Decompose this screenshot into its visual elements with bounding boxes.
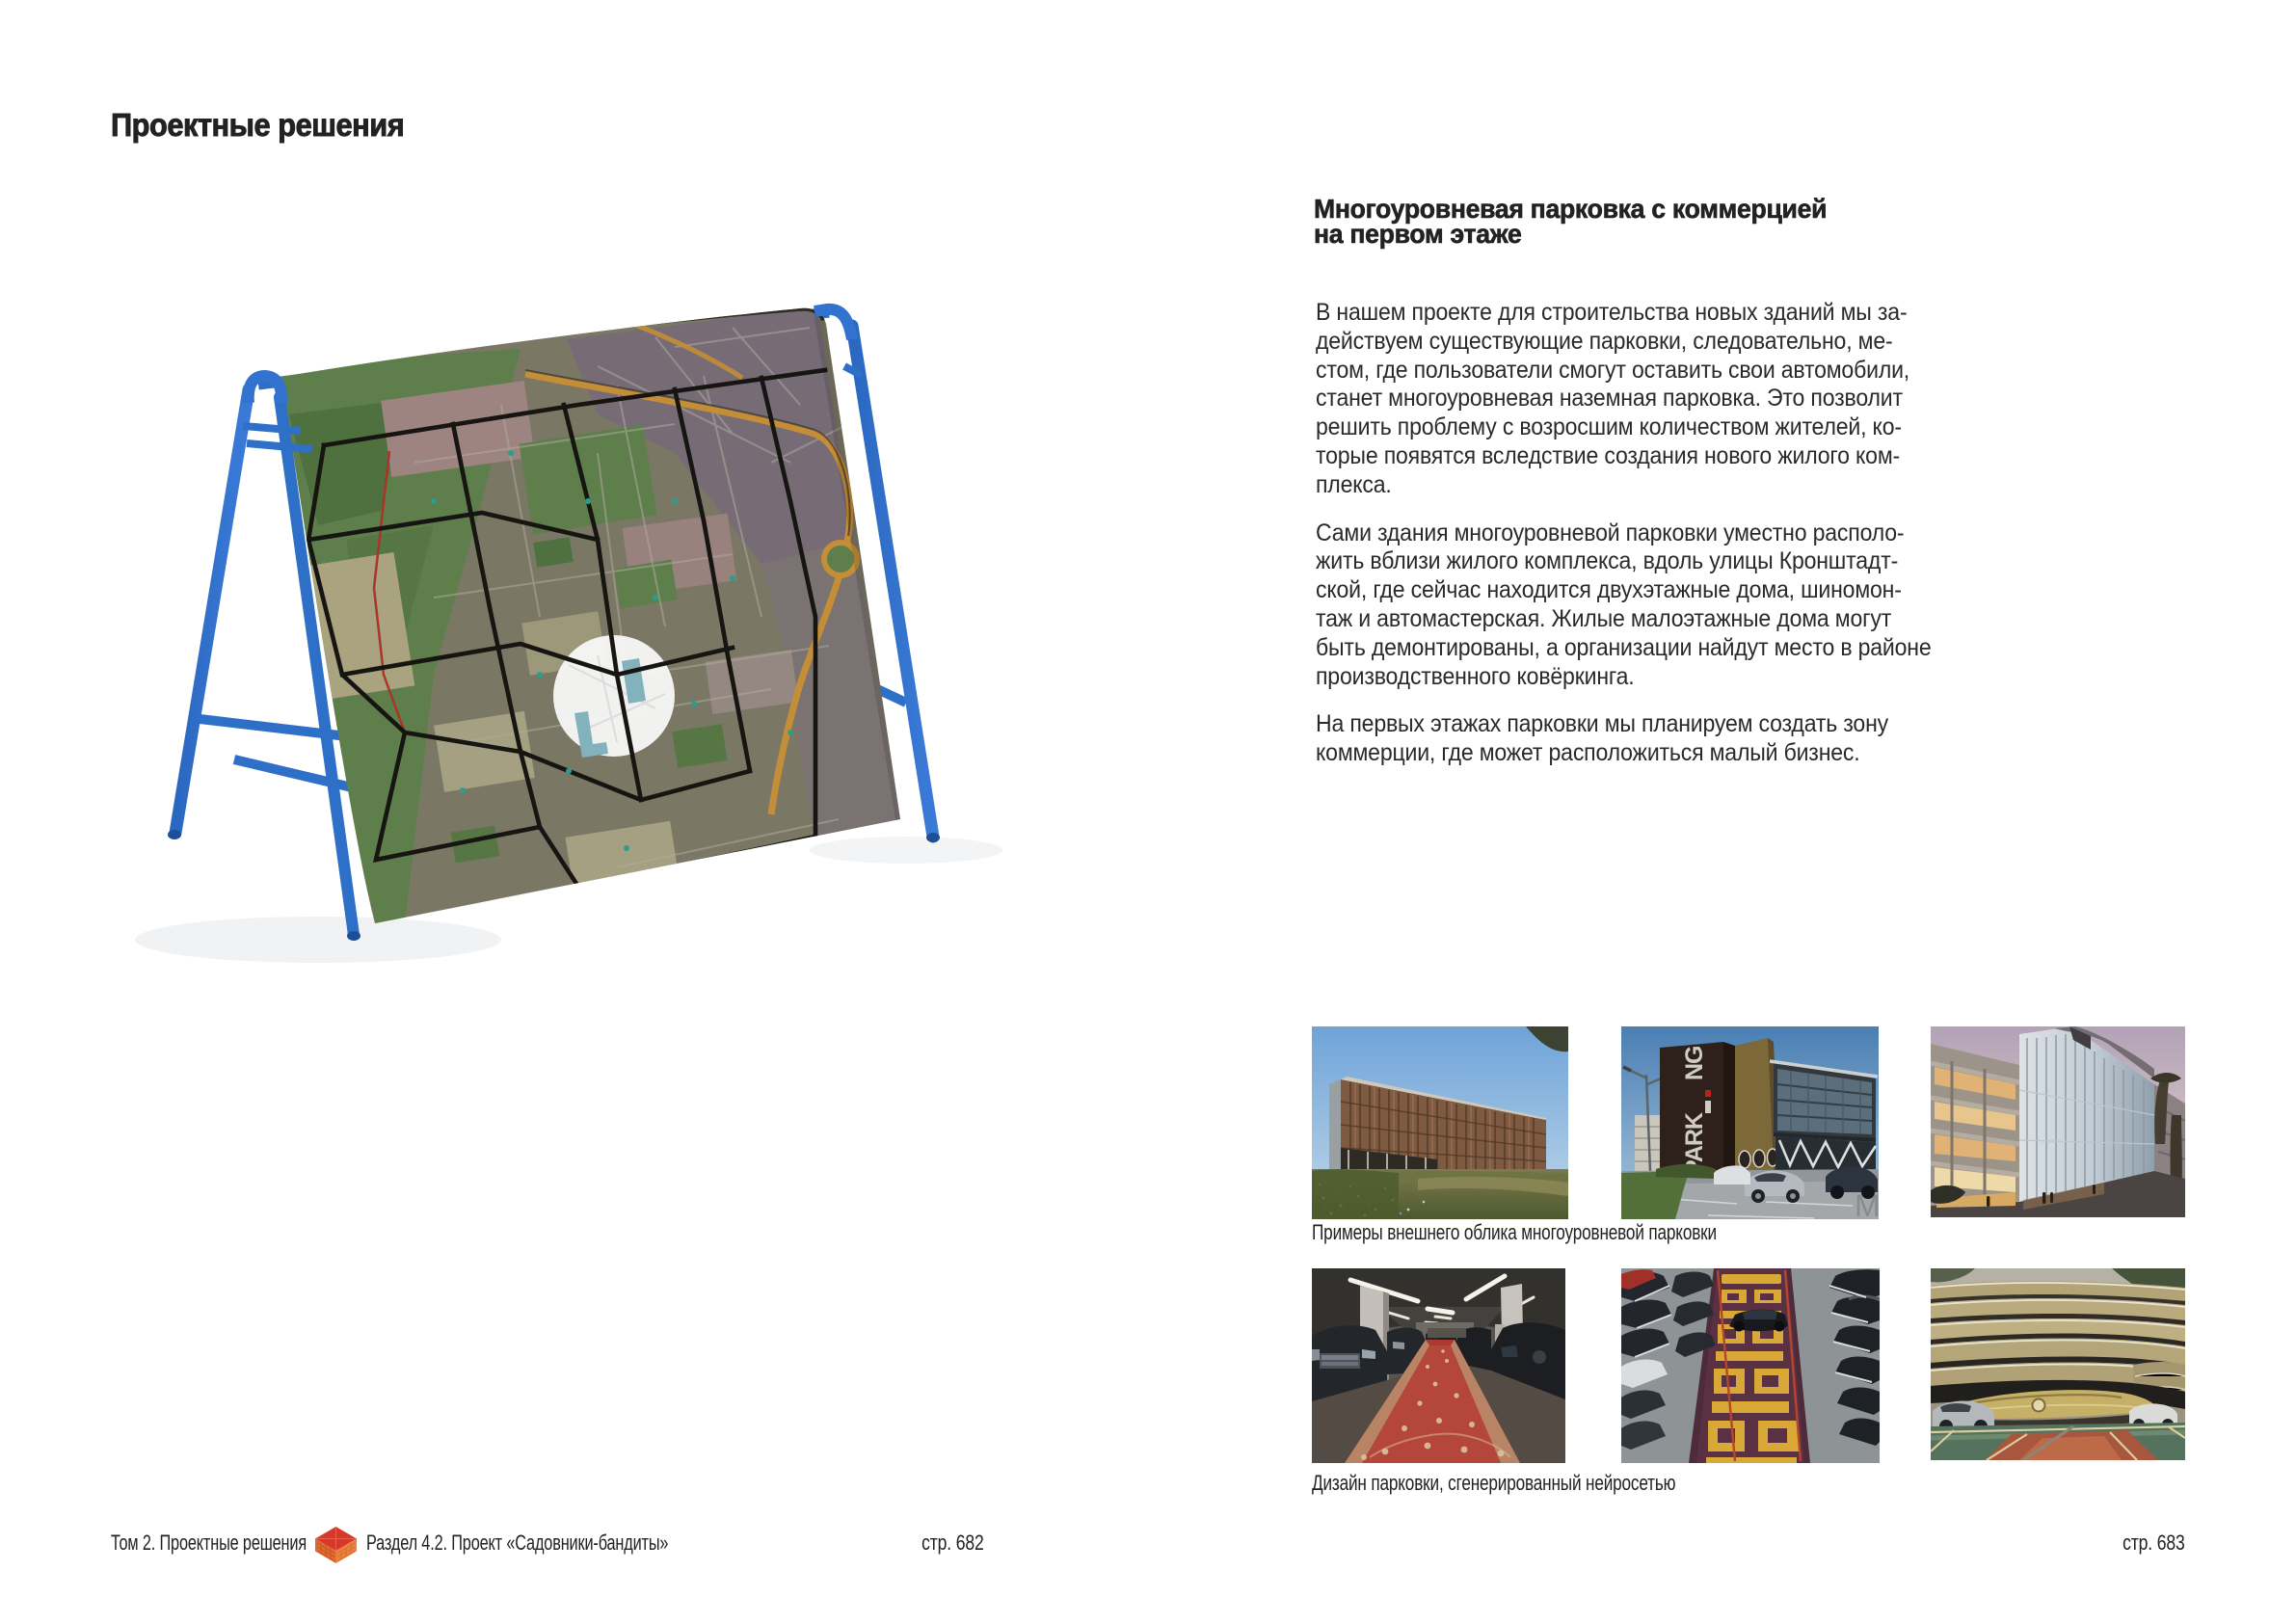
- svg-text:NG: NG: [1681, 1047, 1708, 1081]
- svg-text:M: M: [1855, 1188, 1879, 1219]
